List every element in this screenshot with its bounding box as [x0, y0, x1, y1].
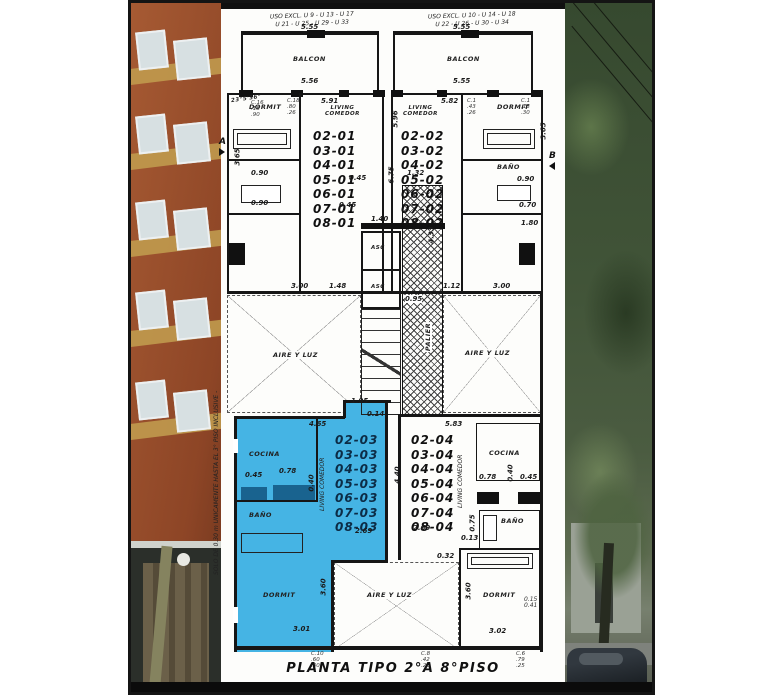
dim-living2-width: 5.82 — [441, 97, 458, 105]
window — [135, 200, 169, 241]
partition-wall — [299, 93, 301, 293]
dim-stack: 0.150.41 — [524, 597, 537, 609]
floor-plan: USO EXCL. U 9 - U 13 - U 17 U 21 - U 25 … — [221, 3, 565, 692]
corner-stack: C.1.43.26 — [467, 98, 476, 116]
wall-pier — [391, 90, 403, 97]
unit03-wall — [385, 400, 388, 563]
street-photo-left — [131, 3, 222, 692]
room-label-dormit-1: DORMIT — [249, 103, 281, 111]
closet — [233, 129, 291, 149]
dim-palier-height: 4.33 — [428, 226, 436, 243]
partition-wall — [461, 93, 463, 293]
dim: 0.14 — [367, 410, 384, 418]
kitchen-counter — [518, 492, 540, 504]
window — [173, 207, 211, 250]
dim-dormit1-width: 3.00 — [291, 282, 308, 290]
dim: 0.45 — [520, 473, 537, 481]
dim: 0.45 — [245, 471, 262, 479]
dim: 0.13 — [461, 534, 478, 542]
dim: 0.95 — [405, 295, 422, 303]
dim-dormit4-width: 3.02 — [489, 627, 506, 635]
room-label-living-2: LIVINGCOMEDOR — [403, 105, 438, 117]
room-balcon-left — [241, 33, 379, 95]
unit03-wall — [343, 400, 346, 418]
mid-wall — [227, 291, 543, 294]
room-balcon-right — [393, 33, 533, 95]
dim: 1.80 — [521, 219, 538, 227]
room-label-aire-left: AIRE Y LUZ — [273, 351, 318, 359]
plan-title: PLANTA TIPO 2°A 8°PISO — [221, 661, 565, 676]
window-gap — [233, 439, 238, 453]
room-label-asc-2: ASC — [371, 284, 385, 290]
wall-pier — [531, 90, 543, 97]
dim: 0.90 — [251, 169, 268, 177]
dim-balcon-left-inner: 5.56 — [301, 77, 318, 85]
dim-dormit2-height: 3.65 — [540, 122, 548, 139]
wall-pier — [291, 90, 303, 97]
storefront-awning — [131, 541, 221, 548]
dim: 2.69 — [355, 527, 372, 535]
kitchen-counter — [241, 487, 267, 501]
partition-wall — [227, 213, 299, 215]
dim: 2.69 — [413, 524, 430, 532]
dim-balcon-right-inner: 5.55 — [453, 77, 470, 85]
dim-dormit1-height: 3.65 — [234, 148, 242, 165]
street-photo-right — [565, 3, 652, 692]
partition-wall — [463, 213, 543, 215]
side-note: SOLO DE 0.30 m UNICAMENTE HASTA EL 3° PI… — [213, 391, 220, 575]
closet — [467, 553, 533, 569]
section-marker-b: B — [549, 151, 556, 170]
bottom-wall — [234, 646, 543, 650]
unit-list-03: 02-0303-0304-0305-0306-0307-0308-03 — [335, 433, 378, 535]
dim-dormit4-height: 3.60 — [465, 582, 473, 599]
wall-pier — [229, 243, 245, 265]
outer-wall-right — [540, 293, 543, 652]
window — [135, 380, 169, 421]
room-label-asc-1: ASC — [371, 245, 385, 251]
closet — [483, 129, 535, 149]
wall-pier — [519, 243, 535, 265]
window — [173, 297, 211, 340]
dim: 5.83 — [445, 420, 462, 428]
dim: 0.78 — [479, 473, 496, 481]
dim: 0.40 — [507, 464, 515, 481]
unit04-wall — [398, 414, 401, 560]
dim: 1.48 — [329, 282, 346, 290]
arrow-icon — [219, 148, 225, 156]
dim: 1.32 — [407, 169, 424, 177]
plan-top-border — [221, 3, 565, 9]
wall-pier — [373, 90, 385, 97]
section-marker-a: A — [219, 137, 226, 156]
window — [135, 30, 169, 71]
uso-exclusivo-note-right: USO EXCL. U 10 - U 14 - U 18 U 22 - U 26… — [397, 9, 547, 30]
unit03-partition — [236, 500, 318, 502]
bathtub — [241, 533, 303, 553]
dim: 0.70 — [519, 201, 536, 209]
corner-stack: C.18.80.26 — [287, 98, 300, 116]
window-gap — [233, 607, 238, 623]
dim: 0.78 — [479, 504, 494, 511]
photo-bottom-bar — [131, 682, 652, 692]
dim: 0.45 — [520, 504, 535, 511]
room-label-living-1: LIVINGCOMEDOR — [325, 105, 360, 117]
unit03-partition — [316, 418, 318, 502]
room-label-dormit-2: DORMIT — [497, 103, 529, 111]
bath-fixture — [483, 515, 497, 541]
kitchen-counter — [477, 492, 499, 504]
dim: 0.45 — [349, 174, 366, 182]
room-label-palier: PALIER — [424, 322, 432, 352]
dim: 4.40 — [394, 466, 402, 483]
dim: 0.90 — [251, 199, 268, 207]
dim: 0.90 — [517, 175, 534, 183]
unit-list-02: 02-0203-0204-0205-0206-0207-0208-02 — [401, 129, 444, 231]
window — [135, 114, 169, 155]
unit03-wall — [236, 416, 345, 419]
room-label-bano-4: BAÑO — [501, 517, 524, 525]
dim: 0.45 — [339, 201, 356, 209]
unit03-wall — [331, 560, 334, 652]
room-label-aire-bottom: AIRE Y LUZ — [367, 591, 412, 599]
highlight-unit-03 — [236, 562, 333, 652]
dim: 0.75 — [469, 514, 477, 531]
dim: 0.40 — [308, 474, 316, 491]
dim-cocina3-width: 4.65 — [309, 420, 326, 428]
unit04-wall — [398, 414, 543, 417]
dim-mid-height-1: 5.96 — [392, 110, 400, 127]
room-label-balcon-right: BALCON — [447, 55, 480, 63]
dim: 0.32 — [437, 552, 454, 560]
storefront-roll — [177, 553, 190, 566]
unit03-wall — [331, 560, 388, 563]
dim-living1-width: 5.91 — [321, 97, 338, 105]
car-windshield — [579, 653, 623, 665]
wall-pier — [461, 30, 479, 38]
dim: 1.95 — [351, 397, 368, 405]
window — [173, 389, 211, 432]
room-label-dormit-4: DORMIT — [483, 591, 515, 599]
dim-balcon-right: 5.55 — [453, 23, 470, 31]
room-label-bano-2: BAÑO — [497, 163, 520, 171]
page: USO EXCL. U 9 - U 13 - U 17 U 21 - U 25 … — [0, 0, 780, 695]
room-label-aire-right: AIRE Y LUZ — [465, 349, 510, 357]
dim: 1.12 — [443, 282, 460, 290]
room-label-cocina-4: COCINA — [489, 449, 520, 457]
unit-list-04: 02-0403-0404-0405-0406-0407-0408-04 — [411, 433, 454, 535]
room-label-bano-3: BAÑO — [249, 511, 272, 519]
courtyard-bottom — [334, 562, 459, 650]
room-label-balcon-left: BALCON — [293, 55, 326, 63]
dim-dormit2-width: 3.00 — [493, 282, 510, 290]
window — [135, 290, 169, 331]
dim-dormit3-width: 3.01 — [293, 625, 310, 633]
wall-pier — [307, 30, 325, 38]
room-label-living-3: LIVING COMEDOR — [319, 458, 326, 511]
wall-pier — [487, 90, 499, 97]
room-label-dormit-3: DORMIT — [263, 591, 295, 599]
arrow-icon — [549, 162, 555, 170]
room-label-living-4: LIVING COMEDOR — [457, 455, 464, 508]
elevator-divider — [361, 269, 401, 271]
dim-balcon-left: 5.55 — [301, 23, 318, 31]
window — [173, 37, 211, 80]
wall-pier — [339, 90, 349, 97]
partition-wall — [463, 159, 543, 161]
bath-fixture — [497, 185, 531, 201]
dim-mid-height-2: 6.75 — [388, 166, 396, 183]
wall-pier — [437, 90, 447, 97]
window — [173, 121, 211, 164]
dim: 1.40 — [371, 215, 388, 223]
room-label-cocina-3: COCINA — [249, 450, 280, 458]
dim-dormit3-height: 3.60 — [320, 578, 328, 595]
listing-photo-composite: USO EXCL. U 9 - U 13 - U 17 U 21 - U 25 … — [128, 0, 655, 695]
power-line — [571, 3, 652, 116]
dim: 0.78 — [279, 467, 296, 475]
